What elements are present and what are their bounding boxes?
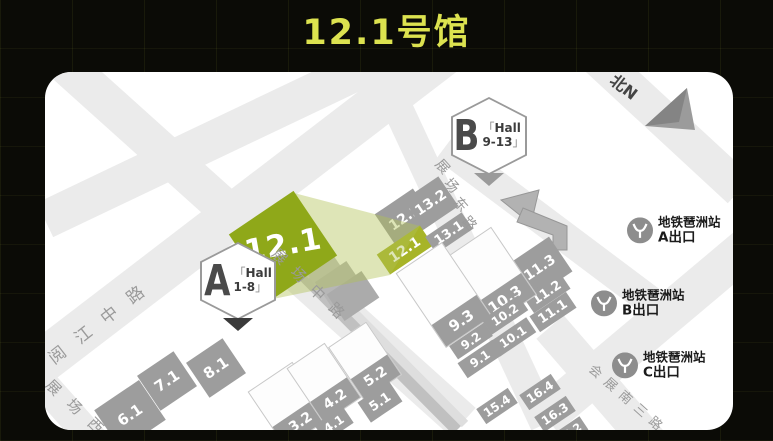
hall-label: 3.2 bbox=[287, 410, 315, 430]
badge-letter: A bbox=[204, 256, 230, 306]
metro-icon bbox=[591, 290, 617, 316]
area-badge-A: A「Hall1-8」 bbox=[200, 242, 276, 334]
page-title: 12.1号馆 bbox=[0, 4, 773, 55]
badge-text: 「Hall1-8」 bbox=[233, 267, 271, 295]
metro-exit-label: B出口 bbox=[622, 302, 685, 318]
metro-station-name: 地铁琶洲站 bbox=[622, 287, 685, 302]
hexagon-icon: A「Hall1-8」 bbox=[200, 242, 276, 320]
metro-icon bbox=[612, 352, 638, 378]
hexagon-icon: B「Hall9-13」 bbox=[451, 97, 527, 175]
badge-letter: B bbox=[454, 111, 480, 161]
metro-exit-label: A出口 bbox=[658, 229, 721, 245]
hall-label: 8.1 bbox=[201, 354, 231, 381]
hall-label: 4.2 bbox=[321, 387, 349, 412]
badge-pointer-icon bbox=[223, 318, 253, 331]
metro-icon bbox=[627, 217, 653, 243]
metro-station-name: 地铁琶洲站 bbox=[643, 349, 706, 364]
hall-label: 6.1 bbox=[115, 401, 145, 428]
metro-station-name: 地铁琶洲站 bbox=[658, 214, 721, 229]
metro-exit-B: 地铁琶洲站B出口 bbox=[591, 287, 685, 318]
metro-exit-C: 地铁琶洲站C出口 bbox=[612, 349, 706, 380]
metro-exit-label: C出口 bbox=[643, 364, 706, 380]
badge-pointer-icon bbox=[474, 173, 504, 186]
hall-label: 7.1 bbox=[152, 367, 182, 394]
hall-label: 13.2 bbox=[413, 188, 449, 219]
metro-exit-A: 地铁琶洲站A出口 bbox=[627, 214, 721, 245]
map-card: 12.1 北N 12.213.212.113.111.311.211.110.3… bbox=[45, 72, 733, 430]
badge-text: 「Hall9-13」 bbox=[482, 122, 524, 150]
area-badge-B: B「Hall9-13」 bbox=[451, 97, 527, 189]
